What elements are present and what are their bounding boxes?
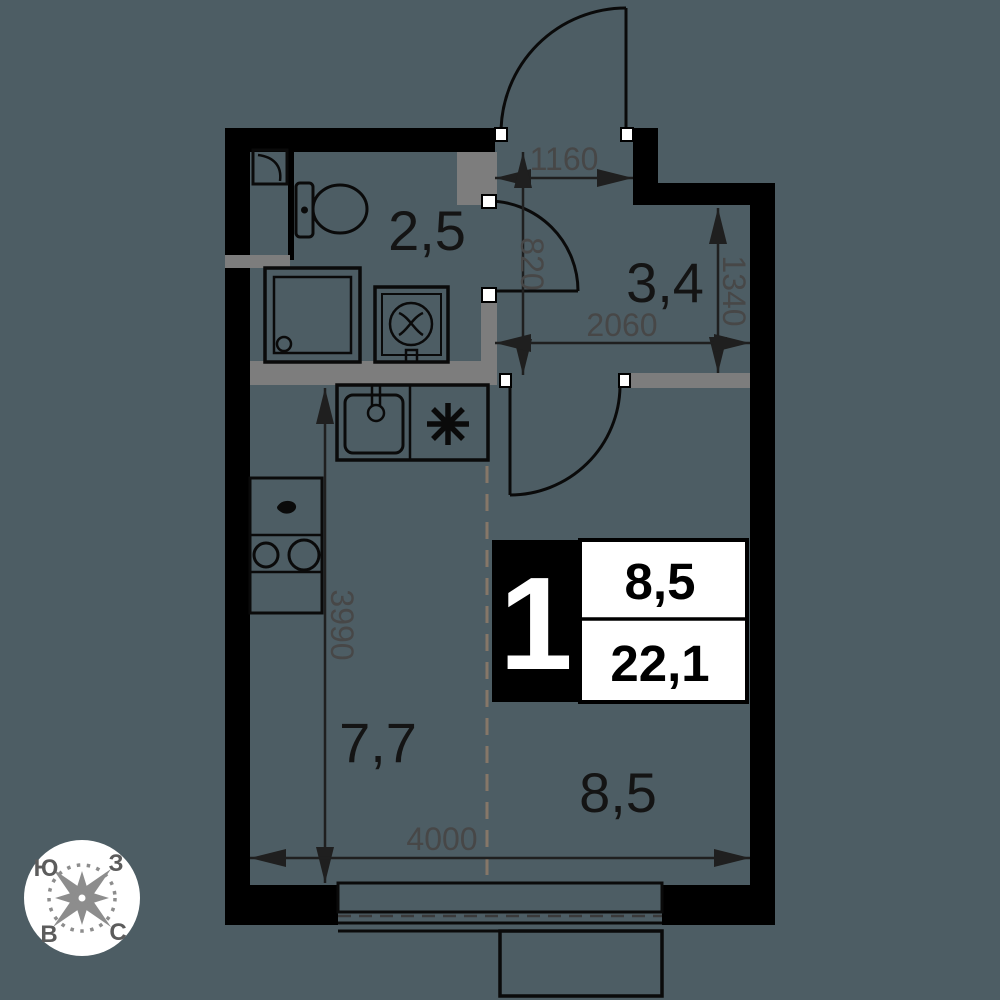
arrow-right-icon xyxy=(714,334,750,352)
dim-text-4000: 4000 xyxy=(406,821,477,857)
arrow-up-icon xyxy=(316,388,334,424)
arrow-left-icon xyxy=(250,849,286,867)
living-jamb-left xyxy=(500,374,511,387)
shaft-icon xyxy=(253,150,287,184)
partition-shaft-stub xyxy=(225,255,290,268)
sink-inner xyxy=(345,395,403,453)
dim-entrance-width: 1160 xyxy=(495,141,633,187)
entrance-jamb-right xyxy=(621,128,633,141)
wall-right xyxy=(750,183,775,925)
wall-shaft-divider xyxy=(288,128,294,260)
compass-hub-hole xyxy=(79,895,86,902)
room-labels: 2,5 3,4 7,7 8,5 xyxy=(339,199,704,824)
floorplan-svg: 1160 820 1340 2060 3990 xyxy=(0,0,1000,1000)
dim-text-3990: 3990 xyxy=(324,589,360,660)
washing-machine-icon xyxy=(375,287,448,362)
compass-letter-south: Ю xyxy=(34,855,59,882)
cabinet-sink-drop-icon xyxy=(277,501,296,514)
hob-burner-small xyxy=(254,543,278,567)
window-sill xyxy=(338,883,662,912)
arrow-up-icon xyxy=(709,208,727,244)
info-living-area: 8,5 xyxy=(625,553,696,610)
living-room-door-arc xyxy=(510,387,620,495)
wall-bottom-left xyxy=(225,885,338,925)
kitchen-fixtures xyxy=(250,385,488,613)
balcony xyxy=(500,931,662,996)
doors xyxy=(488,8,626,495)
apartment-info-box: 1 8,5 22,1 xyxy=(492,540,747,702)
washer-drum-blades xyxy=(399,313,423,335)
faucet-head xyxy=(368,405,384,421)
bathroom-jamb-bottom xyxy=(482,288,496,302)
toilet-icon xyxy=(296,183,367,237)
exterior-walls xyxy=(225,128,775,925)
arrow-right-icon xyxy=(597,169,633,187)
compass-letter-east: В xyxy=(40,921,57,948)
compass-letter-north: С xyxy=(109,919,126,946)
wall-bottom-right xyxy=(662,885,775,925)
living-jamb-right xyxy=(619,374,630,387)
compass-rose: Ю З В С xyxy=(24,840,140,956)
entrance-door xyxy=(501,8,626,133)
arrow-left-icon xyxy=(495,334,531,352)
living-room-door xyxy=(510,387,620,495)
dim-kitchen-zone-depth: 3990 xyxy=(316,388,360,883)
kitchen-cabinets xyxy=(250,478,322,613)
dim-text-1160: 1160 xyxy=(530,141,599,177)
shaft-curve xyxy=(258,155,280,181)
dim-text-820: 820 xyxy=(514,237,550,290)
room-label-bathroom: 2,5 xyxy=(388,199,466,262)
entrance-door-arc xyxy=(501,8,626,133)
floor-plan-page: 1160 820 1340 2060 3990 xyxy=(0,0,1000,1000)
partition-hall-divider xyxy=(630,373,750,388)
shower-inner xyxy=(274,277,351,353)
arrow-right-icon xyxy=(714,849,750,867)
stove-asterisk-icon xyxy=(427,403,469,445)
wall-left xyxy=(225,128,250,925)
entrance-jamb-left xyxy=(495,128,507,141)
toilet-tank-button xyxy=(301,207,308,214)
bathroom-jamb-top xyxy=(482,195,496,208)
room-label-kitchen: 7,7 xyxy=(339,711,417,774)
wall-top-left xyxy=(225,128,495,152)
partition-bath-bottom xyxy=(250,361,497,385)
toilet-bowl xyxy=(313,185,367,233)
shower-icon xyxy=(265,268,360,362)
room-label-hallway: 3,4 xyxy=(626,251,704,314)
kitchen-sink-icon xyxy=(345,385,403,453)
info-room-count: 1 xyxy=(499,550,572,697)
hob-burner-large xyxy=(289,540,319,570)
compass-letter-west: З xyxy=(108,850,123,877)
room-label-living: 8,5 xyxy=(579,761,657,824)
dim-text-1340: 1340 xyxy=(716,255,752,326)
info-total-area: 22,1 xyxy=(610,635,709,692)
arrow-down-icon xyxy=(316,847,334,883)
window-and-balcony xyxy=(338,883,662,996)
shower-drain xyxy=(277,337,291,351)
